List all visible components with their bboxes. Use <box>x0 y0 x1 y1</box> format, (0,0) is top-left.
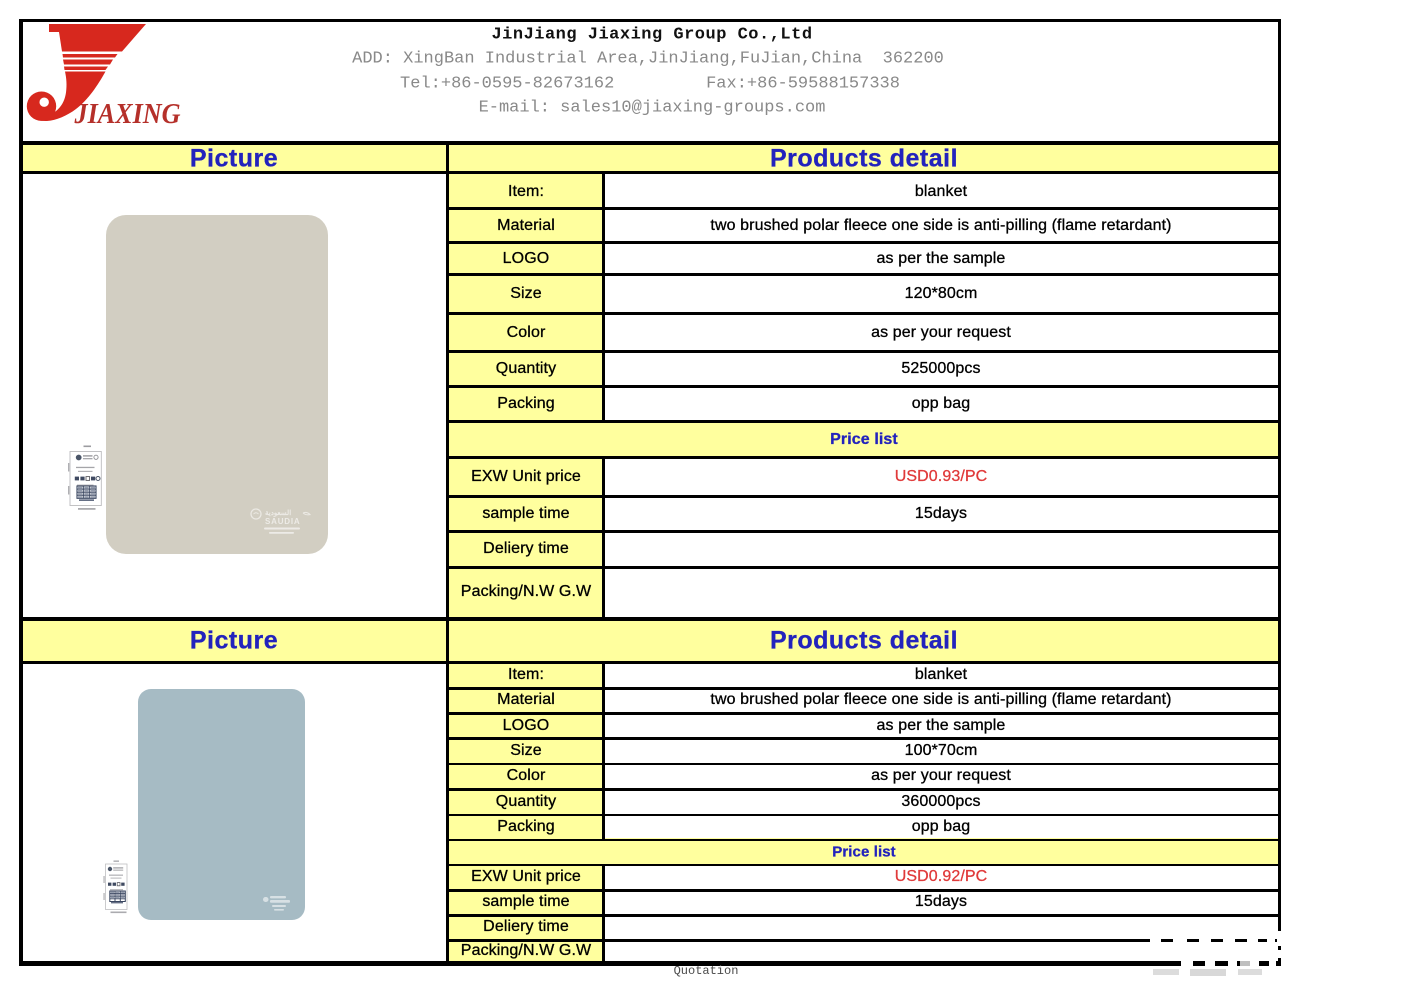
svg-text:SAUDIA: SAUDIA <box>265 517 300 526</box>
svg-text:JIAXING: JIAXING <box>74 99 181 130</box>
svg-text:السعودية: السعودية <box>265 509 291 517</box>
